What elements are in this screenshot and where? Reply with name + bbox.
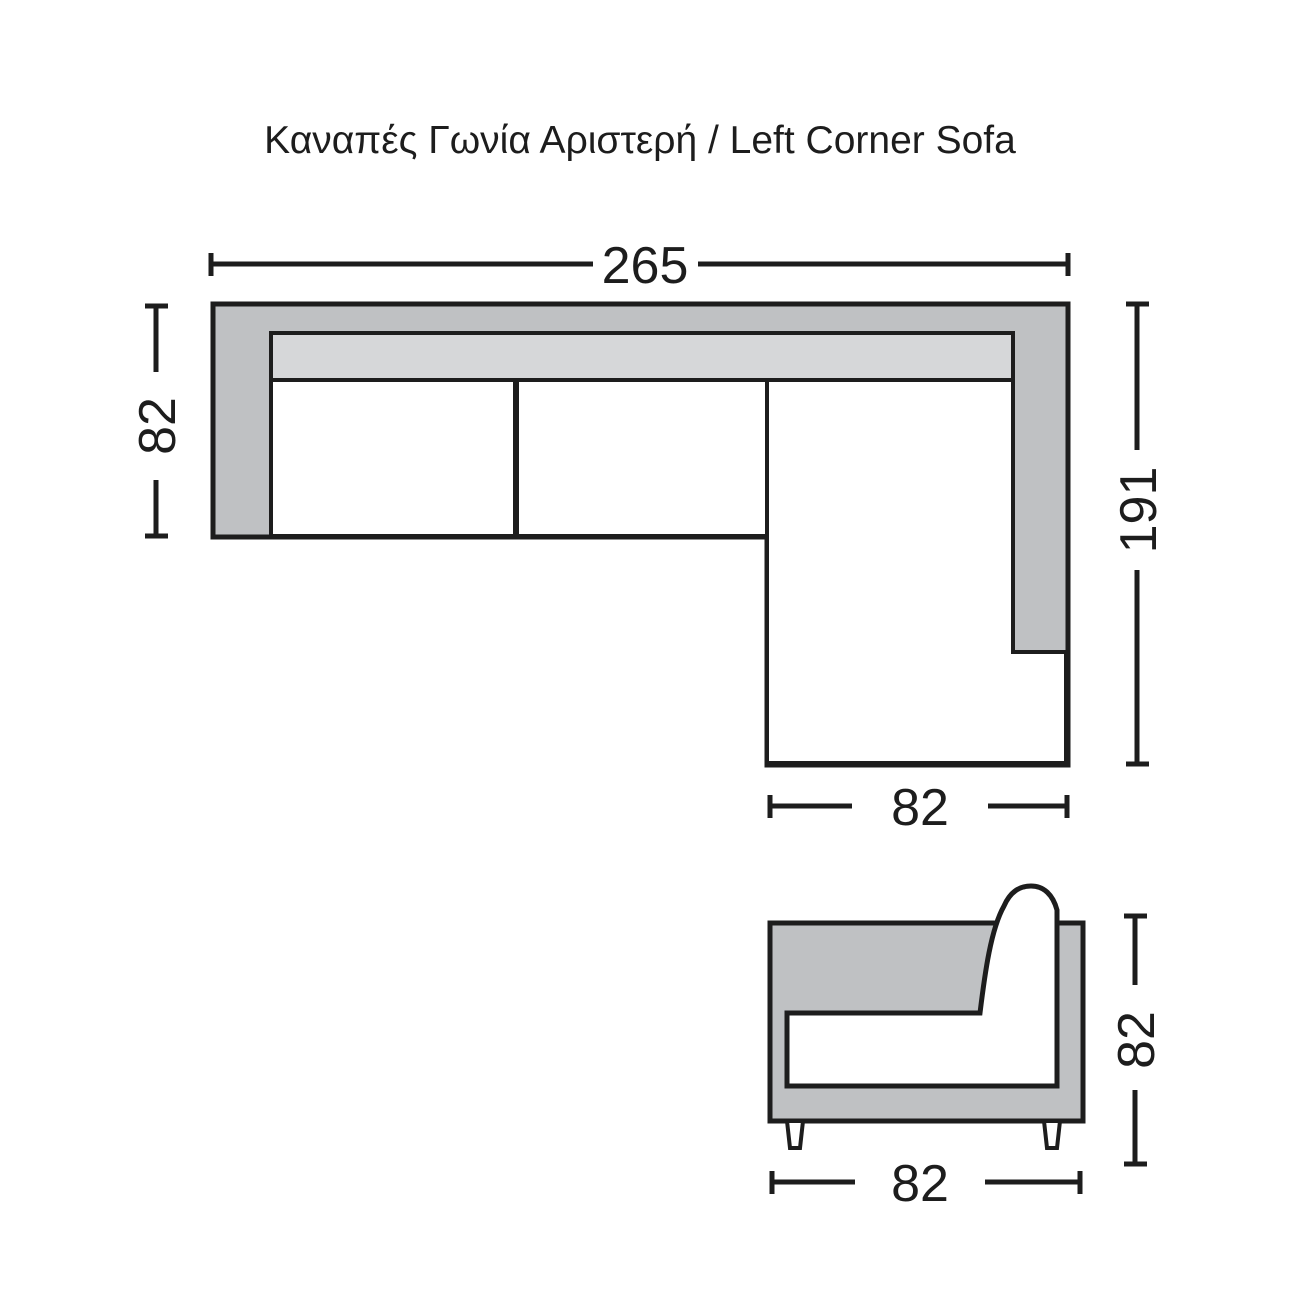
top-view-backrest-cushion (271, 333, 1013, 380)
dim-chaise-length: 191 (1110, 304, 1168, 764)
dim-label-front-height: 82 (1108, 1011, 1166, 1069)
dim-front-width: 82 (772, 1155, 1080, 1213)
dim-front-height: 82 (1108, 916, 1166, 1164)
page-title: Καναπές Γωνία Αριστερή / Left Corner Sof… (264, 119, 1016, 162)
front-view-leg-right (1044, 1121, 1060, 1148)
dim-chaise-width: 82 (770, 779, 1067, 837)
dim-label-front-width: 82 (891, 1155, 949, 1213)
diagram-svg: Καναπές Γωνία Αριστερή / Left Corner Sof… (0, 0, 1300, 1300)
front-view-leg-left (787, 1121, 803, 1148)
dim-label-chaise-length: 191 (1110, 467, 1168, 554)
dim-label-chaise-width: 82 (891, 779, 949, 837)
sofa-dimension-drawing: Καναπές Γωνία Αριστερή / Left Corner Sof… (0, 0, 1300, 1300)
dim-overall-width: 265 (211, 237, 1068, 295)
dim-side-depth: 82 (129, 306, 187, 536)
dim-label-side-depth: 82 (129, 397, 187, 455)
front-view (770, 886, 1083, 1148)
dim-label-overall-width: 265 (602, 237, 689, 295)
top-view (213, 304, 1068, 765)
